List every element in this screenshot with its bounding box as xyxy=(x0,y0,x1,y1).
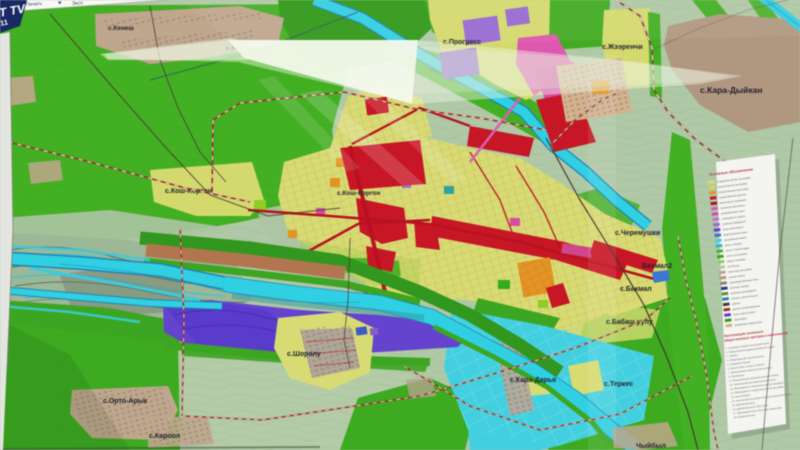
svg-text:с.Орто-Арык: с.Орто-Арык xyxy=(103,398,148,405)
svg-text:с.Черемушки: с.Черемушки xyxy=(615,230,660,237)
svg-text:с.Кара-Дыйкан: с.Кара-Дыйкан xyxy=(700,85,763,95)
svg-text:с.Кароол: с.Кароол xyxy=(149,433,180,440)
svg-text:Бахмал2: Бахмал2 xyxy=(642,263,672,270)
svg-text:с.Шоролу: с.Шоролу xyxy=(287,351,321,358)
svg-text:Эксп: Эксп xyxy=(72,0,84,7)
svg-text:с.Жээренчи: с.Жээренчи xyxy=(602,44,643,51)
svg-text:с.Кош-Коргон: с.Кош-Коргон xyxy=(337,190,380,197)
svg-text:11: 11 xyxy=(0,18,9,28)
svg-text:Чыйбыл: Чыйбыл xyxy=(636,442,666,450)
svg-text:Печать: Печать xyxy=(26,1,43,8)
svg-text:с.Кара-Дарья: с.Кара-Дарья xyxy=(510,377,556,384)
svg-text:с.Кенеш: с.Кенеш xyxy=(108,25,134,32)
